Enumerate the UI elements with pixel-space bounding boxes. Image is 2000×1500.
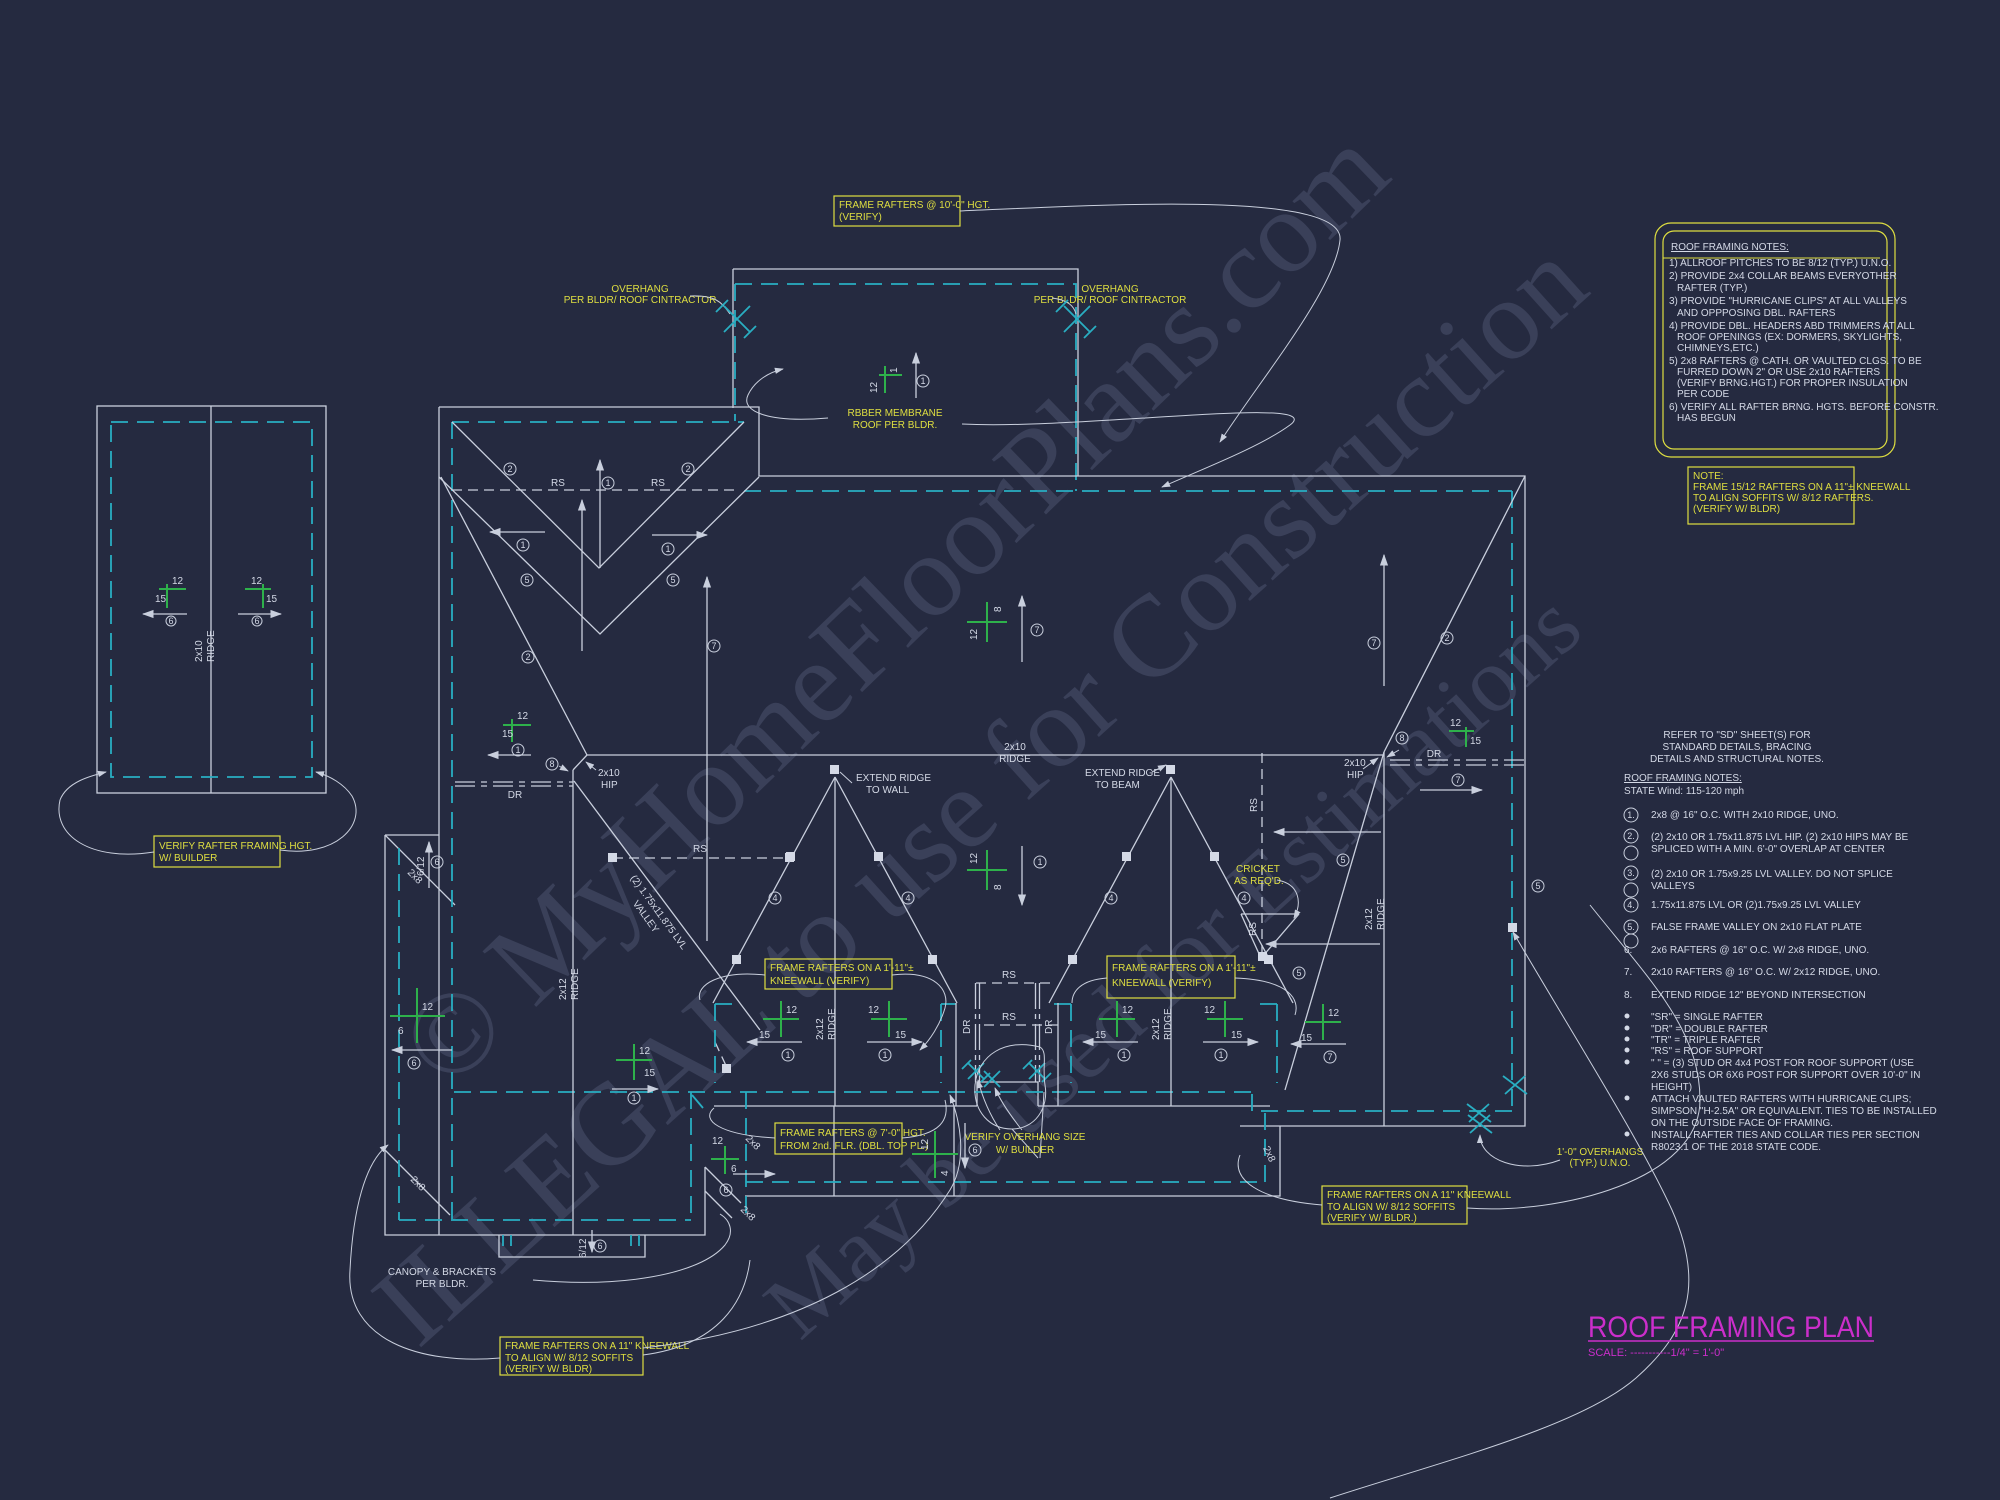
svg-text:2x10: 2x10 bbox=[598, 768, 620, 779]
svg-text:5: 5 bbox=[1535, 881, 1540, 891]
svg-text:PER BLDR/ ROOF CINTRACTOR: PER BLDR/ ROOF CINTRACTOR bbox=[1034, 295, 1187, 306]
svg-text:TO WALL: TO WALL bbox=[866, 785, 910, 796]
svg-text:2: 2 bbox=[1444, 633, 1449, 643]
svg-text:6: 6 bbox=[411, 1058, 416, 1068]
svg-text:FURRED DOWN 2" OR USE 2x10 RAF: FURRED DOWN 2" OR USE 2x10 RAFTERS bbox=[1677, 367, 1880, 378]
svg-text:7.: 7. bbox=[1624, 967, 1632, 978]
svg-text:OVERHANG: OVERHANG bbox=[611, 284, 668, 295]
svg-text:12: 12 bbox=[868, 1005, 880, 1016]
svg-text:HAS BEGUN: HAS BEGUN bbox=[1677, 413, 1736, 424]
svg-text:2.: 2. bbox=[1627, 831, 1635, 841]
svg-text:CRICKET: CRICKET bbox=[1236, 864, 1280, 875]
svg-text:FRAME RAFTERS ON A 1'-11"±: FRAME RAFTERS ON A 1'-11"± bbox=[770, 963, 914, 974]
svg-text:ROOF FRAMING PLAN: ROOF FRAMING PLAN bbox=[1588, 1311, 1874, 1344]
svg-text:(VERIFY W/ BLDR.): (VERIFY W/ BLDR.) bbox=[1327, 1213, 1417, 1224]
svg-text:(TYP.) U.N.O.: (TYP.) U.N.O. bbox=[1570, 1158, 1631, 1169]
svg-text:12: 12 bbox=[422, 1002, 434, 1013]
svg-text:OVERHANG: OVERHANG bbox=[1081, 284, 1138, 295]
svg-text:4: 4 bbox=[1241, 893, 1246, 903]
svg-text:1: 1 bbox=[1037, 857, 1042, 867]
svg-text:6: 6 bbox=[254, 616, 259, 626]
svg-text:2x12: 2x12 bbox=[558, 978, 569, 1000]
svg-text:FRAME RAFTERS ON A 1'-11"±: FRAME RAFTERS ON A 1'-11"± bbox=[1112, 963, 1256, 974]
svg-text:12: 12 bbox=[1122, 1005, 1134, 1016]
svg-text:" " = (3) STUD OR 4x4 POST FO: " " = (3) STUD OR 4x4 POST FOR ROOF SUPP… bbox=[1651, 1058, 1914, 1069]
svg-text:5: 5 bbox=[524, 575, 529, 585]
svg-text:EXTEND RIDGE: EXTEND RIDGE bbox=[856, 773, 931, 784]
svg-text:4: 4 bbox=[940, 1170, 951, 1176]
svg-text:1: 1 bbox=[889, 367, 900, 373]
svg-text:RS: RS bbox=[651, 478, 665, 489]
svg-text:AS REQ'D.: AS REQ'D. bbox=[1234, 876, 1284, 887]
svg-text:5) 2x8 RAFTERS @ CATH. OR VAUL: 5) 2x8 RAFTERS @ CATH. OR VAULTED CLGS. … bbox=[1669, 356, 1922, 367]
svg-text:2x12: 2x12 bbox=[1364, 908, 1375, 930]
svg-text:SPLICED WITH A MIN. 6'-0" OVER: SPLICED WITH A MIN. 6'-0" OVERLAP AT CEN… bbox=[1651, 844, 1885, 855]
svg-text:DR: DR bbox=[962, 1020, 973, 1034]
svg-text:"RS" = ROOF SUPPORT: "RS" = ROOF SUPPORT bbox=[1651, 1046, 1763, 1057]
svg-text:TO ALIGN SOFFITS W/ 8/12 RAFTE: TO ALIGN SOFFITS W/ 8/12 RAFTERS. bbox=[1693, 493, 1873, 504]
svg-text:KNEEWALL (VERIFY): KNEEWALL (VERIFY) bbox=[1112, 978, 1211, 989]
svg-text:5: 5 bbox=[670, 575, 675, 585]
svg-text:RS: RS bbox=[1002, 1012, 1016, 1023]
svg-text:6.: 6. bbox=[1624, 945, 1632, 956]
svg-text:FRAME RAFTERS ON A 11" KNEEWAL: FRAME RAFTERS ON A 11" KNEEWALL bbox=[505, 1341, 690, 1352]
svg-text:HIP: HIP bbox=[1347, 770, 1364, 781]
svg-text:RS: RS bbox=[1249, 798, 1260, 812]
svg-text:R8023.1 OF THE 2018 STATE CODE: R8023.1 OF THE 2018 STATE CODE. bbox=[1651, 1142, 1821, 1153]
svg-text:TO BEAM: TO BEAM bbox=[1095, 780, 1140, 791]
svg-text:1: 1 bbox=[515, 745, 520, 755]
svg-text:2x6 RAFTERS @ 16" O.C. W/ 2x8: 2x6 RAFTERS @ 16" O.C. W/ 2x8 RIDGE, UNO… bbox=[1651, 945, 1869, 956]
svg-text:1.: 1. bbox=[1627, 810, 1635, 820]
svg-text:5: 5 bbox=[1296, 968, 1301, 978]
svg-text:(VERIFY W/ BLDR): (VERIFY W/ BLDR) bbox=[505, 1364, 592, 1375]
svg-text:SCALE: -----------1/4" = 1'-0": SCALE: -----------1/4" = 1'-0" bbox=[1588, 1347, 1724, 1359]
svg-text:2x10: 2x10 bbox=[1004, 742, 1026, 753]
svg-text:RS: RS bbox=[1002, 970, 1016, 981]
svg-text:15: 15 bbox=[895, 1030, 907, 1041]
svg-text:5: 5 bbox=[1340, 855, 1345, 865]
svg-text:DETAILS AND STRUCTURAL NOTES.: DETAILS AND STRUCTURAL NOTES. bbox=[1650, 754, 1824, 765]
svg-text:ROOF OPENINGS (EX: DORMERS, SK: ROOF OPENINGS (EX: DORMERS, SKYLIGHTS, bbox=[1677, 332, 1902, 343]
svg-text:6: 6 bbox=[597, 1241, 602, 1251]
svg-text:RS: RS bbox=[693, 844, 707, 855]
svg-text:1: 1 bbox=[520, 540, 525, 550]
svg-text:STANDARD DETAILS, BRACING: STANDARD DETAILS, BRACING bbox=[1662, 742, 1811, 753]
svg-text:12: 12 bbox=[1450, 718, 1462, 729]
svg-text:FALSE FRAME VALLEY ON 2x10 FLA: FALSE FRAME VALLEY ON 2x10 FLAT PLATE bbox=[1651, 922, 1862, 933]
svg-text:12: 12 bbox=[969, 852, 980, 864]
svg-text:(2) 2x10 OR 1.75x9.25 LVL VALL: (2) 2x10 OR 1.75x9.25 LVL VALLEY. DO NOT… bbox=[1651, 869, 1893, 880]
svg-text:EXTEND RIDGE: EXTEND RIDGE bbox=[1085, 768, 1160, 779]
svg-text:RBBER MEMBRANE: RBBER MEMBRANE bbox=[847, 408, 942, 419]
svg-text:1: 1 bbox=[785, 1050, 790, 1060]
svg-text:RIDGE: RIDGE bbox=[206, 630, 217, 662]
svg-text:12: 12 bbox=[172, 576, 184, 587]
svg-text:2x8 @ 16" O.C. WITH 2x10 RIDGE: 2x8 @ 16" O.C. WITH 2x10 RIDGE, UNO. bbox=[1651, 810, 1839, 821]
svg-text:15: 15 bbox=[644, 1068, 656, 1079]
svg-text:ROOF PER BLDR.: ROOF PER BLDR. bbox=[853, 420, 937, 431]
svg-text:DR: DR bbox=[1427, 749, 1441, 760]
svg-text:"SR" = SINGLE RAFTER: "SR" = SINGLE RAFTER bbox=[1651, 1012, 1763, 1023]
svg-text:TO ALIGN W/ 8/12 SOFFITS: TO ALIGN W/ 8/12 SOFFITS bbox=[1327, 1202, 1456, 1213]
svg-text:2: 2 bbox=[685, 464, 690, 474]
svg-text:8: 8 bbox=[1399, 733, 1404, 743]
svg-text:(VERIFY): (VERIFY) bbox=[839, 212, 882, 223]
svg-text:2X6 STUDS OR 6X6 POST FOR SUPP: 2X6 STUDS OR 6X6 POST FOR SUPPORT OVER 1… bbox=[1651, 1070, 1920, 1081]
svg-text:1.75x11.875 LVL OR (2)1.75x9.2: 1.75x11.875 LVL OR (2)1.75x9.25 LVL VALL… bbox=[1651, 900, 1861, 911]
svg-text:15: 15 bbox=[1231, 1030, 1243, 1041]
svg-text:4: 4 bbox=[772, 893, 777, 903]
svg-text:7: 7 bbox=[1327, 1052, 1332, 1062]
svg-text:FRAME RAFTERS @ 10'-0" HGT.: FRAME RAFTERS @ 10'-0" HGT. bbox=[839, 200, 990, 211]
svg-text:12: 12 bbox=[969, 628, 980, 640]
svg-text:RIDGE: RIDGE bbox=[1163, 1008, 1174, 1040]
svg-text:2: 2 bbox=[525, 652, 530, 662]
svg-text:8.: 8. bbox=[1624, 990, 1632, 1001]
svg-text:6/12: 6/12 bbox=[578, 1238, 589, 1258]
svg-text:6: 6 bbox=[723, 1185, 728, 1195]
svg-text:6) VERIFY ALL RAFTER BRNG. HGT: 6) VERIFY ALL RAFTER BRNG. HGTS. BEFORE … bbox=[1669, 402, 1939, 413]
svg-text:RIDGE: RIDGE bbox=[827, 1008, 838, 1040]
svg-text:1: 1 bbox=[882, 1050, 887, 1060]
svg-text:12: 12 bbox=[1204, 1005, 1216, 1016]
svg-text:SIMPSON "H-2.5A" OR EQUIVALENT: SIMPSON "H-2.5A" OR EQUIVALENT. TIES TO … bbox=[1651, 1106, 1937, 1117]
svg-text:KNEEWALL (VERIFY): KNEEWALL (VERIFY) bbox=[770, 976, 869, 987]
svg-text:7: 7 bbox=[1034, 625, 1039, 635]
svg-text:1: 1 bbox=[605, 478, 610, 488]
svg-text:15: 15 bbox=[1095, 1030, 1107, 1041]
svg-text:"DR" = DOUBLE RAFTER: "DR" = DOUBLE RAFTER bbox=[1651, 1024, 1768, 1035]
svg-text:(VERIFY BRNG.HGT.) FOR PROPER: (VERIFY BRNG.HGT.) FOR PROPER INSULATION bbox=[1677, 378, 1908, 389]
svg-text:EXTEND RIDGE 12" BEYOND INTERS: EXTEND RIDGE 12" BEYOND INTERSECTION bbox=[1651, 990, 1866, 1001]
svg-text:"TR" = TRIPLE RAFTER: "TR" = TRIPLE RAFTER bbox=[1651, 1035, 1760, 1046]
svg-text:3) PROVIDE "HURRICANE CLIPS" A: 3) PROVIDE "HURRICANE CLIPS" AT ALL VALL… bbox=[1669, 296, 1907, 307]
svg-text:1: 1 bbox=[1218, 1050, 1223, 1060]
svg-text:15: 15 bbox=[266, 594, 278, 605]
svg-text:6: 6 bbox=[434, 857, 439, 867]
svg-text:VALLEYS: VALLEYS bbox=[1651, 881, 1695, 892]
svg-text:FRAME RAFTERS ON A 11" KNEEWAL: FRAME RAFTERS ON A 11" KNEEWALL bbox=[1327, 1190, 1512, 1201]
svg-text:VERIFY OVERHANG SIZE: VERIFY OVERHANG SIZE bbox=[965, 1132, 1086, 1143]
svg-text:INSTALL RAFTER TIES AND COLLAR: INSTALL RAFTER TIES AND COLLAR TIES PER … bbox=[1651, 1130, 1920, 1141]
svg-text:CANOPY & BRACKETS: CANOPY & BRACKETS bbox=[388, 1267, 497, 1278]
svg-text:12: 12 bbox=[1328, 1008, 1340, 1019]
svg-text:4.: 4. bbox=[1627, 900, 1635, 910]
svg-text:4: 4 bbox=[905, 893, 910, 903]
svg-text:15: 15 bbox=[502, 729, 514, 740]
svg-text:FROM 2nd. FLR. (DBL. TOP PL.): FROM 2nd. FLR. (DBL. TOP PL.) bbox=[780, 1141, 928, 1152]
svg-text:12: 12 bbox=[920, 1138, 931, 1150]
svg-text:HIP: HIP bbox=[601, 780, 618, 791]
svg-text:12: 12 bbox=[786, 1005, 798, 1016]
svg-text:DR: DR bbox=[1044, 1020, 1055, 1034]
svg-text:2x12: 2x12 bbox=[815, 1018, 826, 1040]
svg-text:HEIGHT): HEIGHT) bbox=[1651, 1082, 1692, 1093]
svg-text:6: 6 bbox=[972, 1145, 977, 1155]
svg-text:15: 15 bbox=[155, 594, 167, 605]
svg-text:12: 12 bbox=[869, 381, 880, 393]
svg-text:4) PROVIDE DBL. HEADERS ABD TR: 4) PROVIDE DBL. HEADERS ABD TRIMMERS AT … bbox=[1669, 321, 1915, 332]
svg-text:W/ BUILDER: W/ BUILDER bbox=[159, 853, 217, 864]
svg-text:RIDGE: RIDGE bbox=[1376, 898, 1387, 930]
svg-text:2x10: 2x10 bbox=[1344, 758, 1366, 769]
svg-text:15: 15 bbox=[1470, 736, 1482, 747]
svg-text:(2) 2x10 OR 1.75x11.875 LVL HI: (2) 2x10 OR 1.75x11.875 LVL HIP. (2) 2x1… bbox=[1651, 832, 1908, 843]
svg-text:7: 7 bbox=[1371, 638, 1376, 648]
svg-text:NOTE:: NOTE: bbox=[1693, 471, 1724, 482]
svg-text:ON THE OUTSIDE FACE OF FRAMING: ON THE OUTSIDE FACE OF FRAMING. bbox=[1651, 1118, 1833, 1129]
svg-text:5.: 5. bbox=[1627, 922, 1635, 932]
svg-text:2: 2 bbox=[507, 464, 512, 474]
svg-text:PER BLDR/ ROOF CINTRACTOR: PER BLDR/ ROOF CINTRACTOR bbox=[564, 295, 717, 306]
svg-text:12: 12 bbox=[251, 576, 263, 587]
svg-text:VERIFY RAFTER FRAMING HGT.: VERIFY RAFTER FRAMING HGT. bbox=[159, 841, 312, 852]
svg-text:1) ALLROOF PITCHES TO BE 8/12: 1) ALLROOF PITCHES TO BE 8/12 (TYP.) U.N… bbox=[1669, 258, 1891, 269]
svg-text:AND OPPPOSING DBL. RAFTERS: AND OPPPOSING DBL. RAFTERS bbox=[1677, 308, 1836, 319]
svg-text:1: 1 bbox=[920, 376, 925, 386]
svg-text:1: 1 bbox=[665, 544, 670, 554]
svg-text:CHIMNEYS,ETC.): CHIMNEYS,ETC.) bbox=[1677, 343, 1759, 354]
svg-text:ATTACH VAULTED RAFTERS WITH HU: ATTACH VAULTED RAFTERS WITH HURRICANE CL… bbox=[1651, 1094, 1911, 1105]
svg-text:PER CODE: PER CODE bbox=[1677, 389, 1730, 400]
svg-text:STATE Wind: 115-120 mph: STATE Wind: 115-120 mph bbox=[1624, 786, 1744, 797]
svg-text:FRAME 15/12 RAFTERS ON A 11"±: FRAME 15/12 RAFTERS ON A 11"± KNEEWALL bbox=[1693, 482, 1911, 493]
svg-text:RIDGE: RIDGE bbox=[999, 754, 1031, 765]
svg-text:4: 4 bbox=[1108, 893, 1113, 903]
svg-text:2) PROVIDE 2x4 COLLAR BEAMS EV: 2) PROVIDE 2x4 COLLAR BEAMS EVERYOTHER bbox=[1669, 271, 1897, 282]
svg-text:8: 8 bbox=[549, 759, 554, 769]
svg-text:TO ALIGN W/ 8/12 SOFFITS: TO ALIGN W/ 8/12 SOFFITS bbox=[505, 1353, 634, 1364]
svg-text:ROOF FRAMING NOTES:: ROOF FRAMING NOTES: bbox=[1624, 773, 1742, 784]
svg-text:REFER TO "SD" SHEET(S) FOR: REFER TO "SD" SHEET(S) FOR bbox=[1663, 730, 1810, 741]
svg-text:W/ BUILDER: W/ BUILDER bbox=[996, 1145, 1054, 1156]
svg-text:7: 7 bbox=[711, 641, 716, 651]
svg-text:RAFTER (TYP.): RAFTER (TYP.) bbox=[1677, 283, 1747, 294]
svg-text:12: 12 bbox=[712, 1136, 724, 1147]
svg-text:2x12: 2x12 bbox=[1151, 1018, 1162, 1040]
svg-text:7: 7 bbox=[1455, 775, 1460, 785]
svg-text:3.: 3. bbox=[1627, 868, 1635, 878]
svg-text:12: 12 bbox=[517, 711, 529, 722]
svg-text:(VERIFY W/ BLDR): (VERIFY W/ BLDR) bbox=[1693, 504, 1780, 515]
svg-text:1'-0" OVERHANGS: 1'-0" OVERHANGS bbox=[1557, 1147, 1644, 1158]
svg-text:RS: RS bbox=[1248, 922, 1259, 936]
svg-text:ROOF FRAMING NOTES:: ROOF FRAMING NOTES: bbox=[1671, 242, 1789, 253]
svg-text:6: 6 bbox=[168, 616, 173, 626]
svg-text:RS: RS bbox=[551, 478, 565, 489]
svg-text:2x10 RAFTERS @ 16" O.C. W/ 2x1: 2x10 RAFTERS @ 16" O.C. W/ 2x12 RIDGE, U… bbox=[1651, 967, 1880, 978]
svg-text:15: 15 bbox=[1301, 1033, 1313, 1044]
svg-text:2x10: 2x10 bbox=[194, 640, 205, 662]
svg-text:12: 12 bbox=[639, 1046, 651, 1057]
svg-text:1: 1 bbox=[631, 1093, 636, 1103]
svg-text:1: 1 bbox=[1121, 1050, 1126, 1060]
svg-text:PER BLDR.: PER BLDR. bbox=[416, 1279, 469, 1290]
svg-text:8: 8 bbox=[993, 606, 1004, 612]
svg-text:RIDGE: RIDGE bbox=[570, 968, 581, 1000]
svg-text:15: 15 bbox=[759, 1030, 771, 1041]
svg-text:8: 8 bbox=[993, 884, 1004, 890]
svg-text:6: 6 bbox=[398, 1026, 404, 1037]
svg-text:DR: DR bbox=[508, 790, 522, 801]
